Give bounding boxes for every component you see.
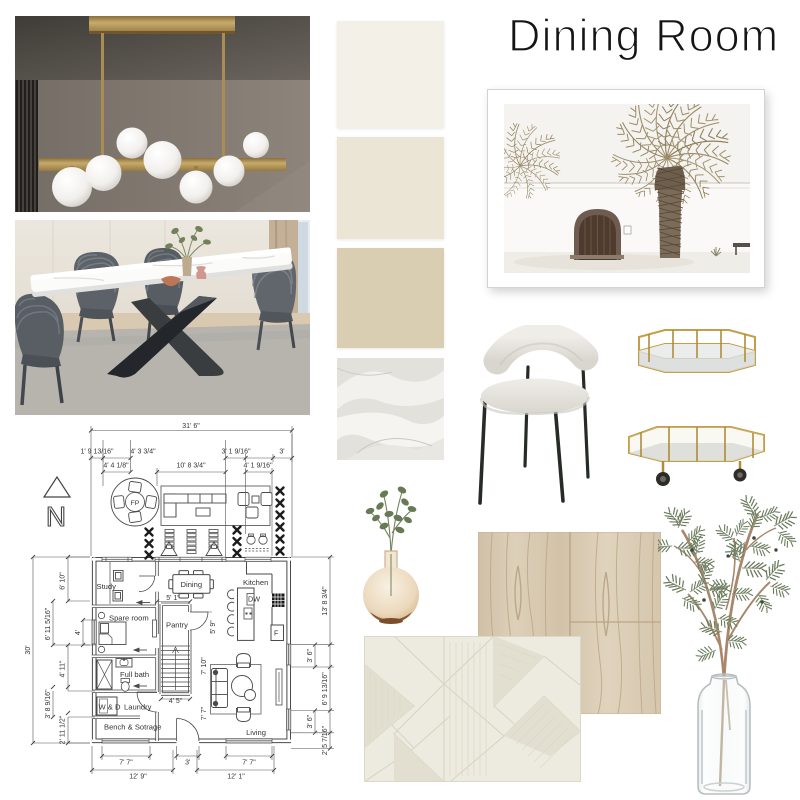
svg-text:4' 1 9/16": 4' 1 9/16" xyxy=(243,463,273,470)
svg-text:6' 11 5/16": 6' 11 5/16" xyxy=(45,607,52,640)
svg-text:Kitchen: Kitchen xyxy=(243,578,268,587)
svg-text:4' 3 3/4": 4' 3 3/4" xyxy=(130,449,156,456)
svg-text:Full bath: Full bath xyxy=(120,670,149,679)
svg-text:13' 8 3/4": 13' 8 3/4" xyxy=(322,586,329,616)
svg-text:10' 8 3/4": 10' 8 3/4" xyxy=(176,463,206,470)
svg-text:5' 9": 5' 9" xyxy=(210,620,217,634)
svg-text:7' 7": 7' 7" xyxy=(201,706,208,720)
svg-text:30': 30' xyxy=(25,645,32,654)
svg-text:DW: DW xyxy=(248,595,260,604)
svg-text:4' 11": 4' 11" xyxy=(60,660,67,677)
svg-text:FP: FP xyxy=(131,500,140,507)
svg-text:12' 1": 12' 1" xyxy=(227,774,245,781)
svg-text:Spare room: Spare room xyxy=(109,614,149,623)
svg-text:31' 6": 31' 6" xyxy=(182,423,200,430)
svg-text:3': 3' xyxy=(279,449,284,456)
svg-text:2' 5 7/16": 2' 5 7/16" xyxy=(322,725,329,755)
svg-text:6' 9 13/16": 6' 9 13/16" xyxy=(322,672,329,706)
svg-text:Bench & Sotrage: Bench & Sotrage xyxy=(104,723,161,732)
svg-text:7' 10": 7' 10" xyxy=(201,657,208,675)
svg-text:5' 1": 5' 1" xyxy=(166,595,180,602)
svg-text:7' 7": 7' 7" xyxy=(119,760,133,767)
svg-text:Study: Study xyxy=(97,582,117,591)
svg-text:3' 6": 3' 6" xyxy=(307,714,314,728)
svg-text:3' 6": 3' 6" xyxy=(307,649,314,663)
svg-text:Pantry: Pantry xyxy=(166,621,188,630)
svg-text:1' 9 13/16": 1' 9 13/16" xyxy=(80,449,114,456)
svg-text:Laundry: Laundry xyxy=(124,703,152,712)
svg-text:3' 8 9/16": 3' 8 9/16" xyxy=(45,689,52,719)
svg-text:W & D: W & D xyxy=(99,703,121,712)
svg-text:4' 4 1/8": 4' 4 1/8" xyxy=(103,463,129,470)
svg-text:N: N xyxy=(46,501,66,532)
svg-text:2' 11 1/2": 2' 11 1/2" xyxy=(60,715,67,744)
svg-text:6' 10": 6' 10" xyxy=(60,572,67,590)
svg-text:7' 7": 7' 7" xyxy=(242,760,256,767)
svg-text:12' 9": 12' 9" xyxy=(129,774,147,781)
svg-text:3' 1 9/16": 3' 1 9/16" xyxy=(221,449,251,456)
svg-text:Dining: Dining xyxy=(181,580,203,589)
svg-text:4': 4' xyxy=(75,630,82,635)
svg-text:3': 3' xyxy=(185,760,190,767)
svg-text:Living: Living xyxy=(246,728,266,737)
svg-text:F: F xyxy=(274,631,278,638)
